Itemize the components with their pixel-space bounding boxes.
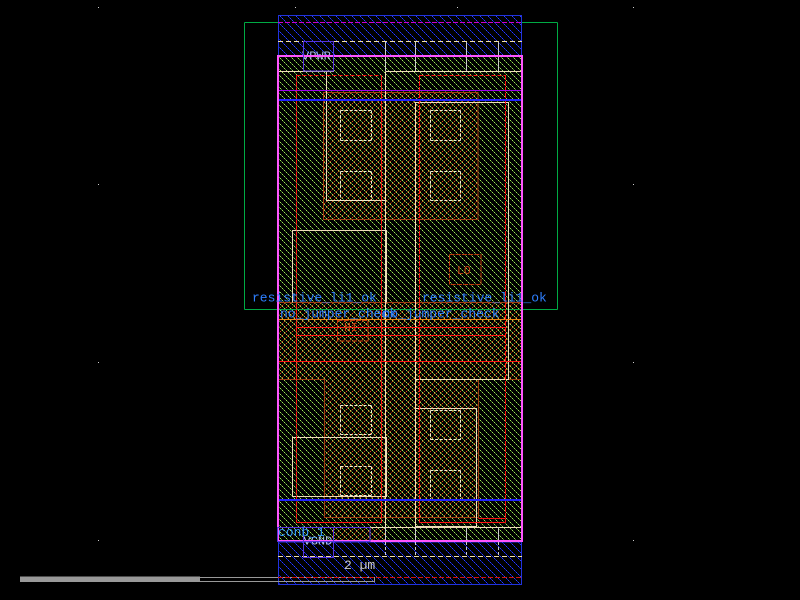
svg-text:no_jumper_check: no_jumper_check <box>383 307 500 322</box>
svg-text:conb_1: conb_1 <box>278 525 325 540</box>
svg-text:resistive_li1_ok: resistive_li1_ok <box>422 291 547 306</box>
svg-text:LO: LO <box>457 265 471 278</box>
svg-text:resistive_li1_ok: resistive_li1_ok <box>252 291 377 306</box>
svg-text:2 µm: 2 µm <box>344 558 375 573</box>
svg-text:HI: HI <box>344 322 358 335</box>
svg-text:no_jumper_check: no_jumper_check <box>280 307 397 322</box>
